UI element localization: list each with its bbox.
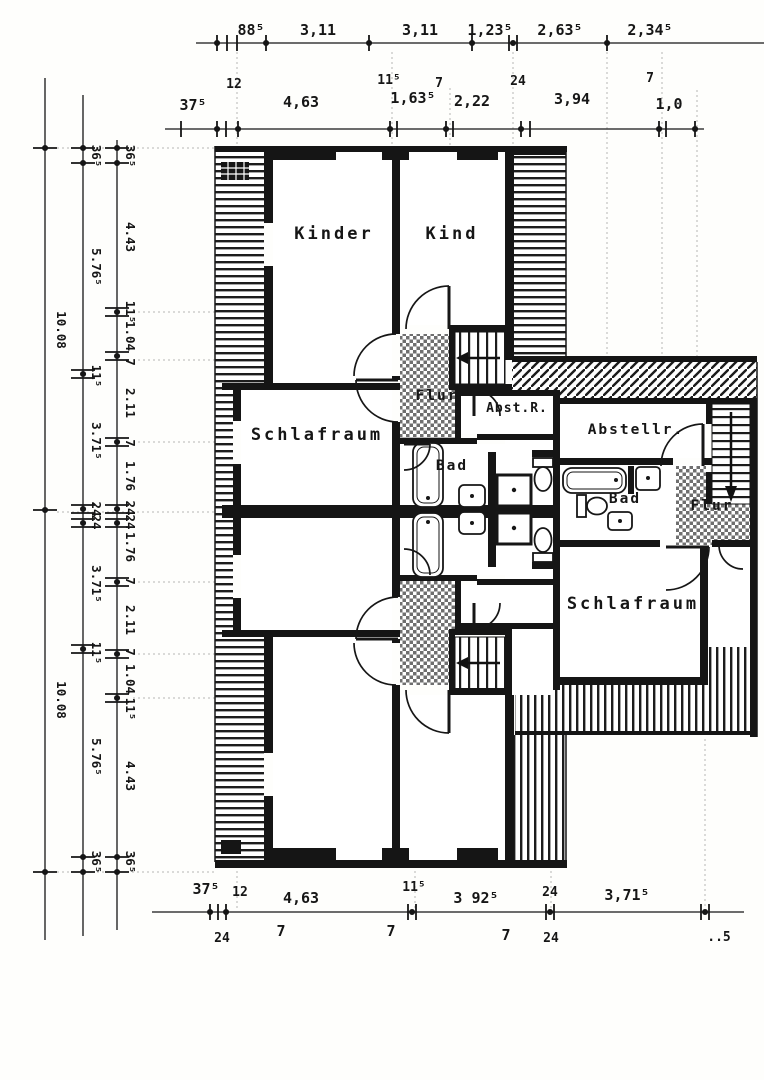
room-schlafraum-lower bbox=[241, 518, 392, 630]
dim-label: 24 bbox=[542, 885, 558, 900]
dim-label: 7 bbox=[123, 358, 138, 366]
dimension-row-top-1: 88⁵ 3,11 3,11 1,23⁵ 2,63⁵ 2,34⁵ bbox=[196, 21, 764, 51]
dim-label: 24 bbox=[89, 514, 104, 529]
window-block bbox=[512, 146, 566, 155]
dim-label: 1.04 bbox=[123, 664, 138, 694]
room-label-bad-right: Bad bbox=[609, 491, 641, 507]
dim-label: 11⁵ bbox=[89, 642, 104, 665]
vent-block bbox=[221, 840, 241, 854]
room-label-abstr: Abst.R. bbox=[486, 401, 548, 416]
room-schlafraum-upper bbox=[241, 390, 392, 505]
dim-label: 1,23⁵ bbox=[467, 21, 512, 39]
dim-label: 37⁵ bbox=[179, 96, 206, 114]
room-label-kind: Kind bbox=[426, 224, 479, 244]
dim-label: 3.71⁵ bbox=[89, 422, 104, 460]
dim-label: 7 bbox=[646, 71, 654, 86]
dim-label: 4,63 bbox=[283, 93, 319, 111]
dimension-row-bottom: 37⁵ 12 4,63 11⁵ 3 92⁵ 24 3,71⁵ 24 7 7 7 … bbox=[152, 880, 744, 946]
dim-label: 2,34⁵ bbox=[627, 21, 672, 39]
dim-label: 2,63⁵ bbox=[537, 21, 582, 39]
room-lower-right bbox=[400, 695, 505, 860]
dim-label: 12 bbox=[232, 885, 248, 900]
window-block bbox=[382, 848, 409, 860]
dim-label: 36⁵ bbox=[89, 851, 104, 874]
dim-label: 10.08 bbox=[54, 311, 69, 349]
dim-label: 7 bbox=[435, 76, 443, 91]
dim-label: 5.76⁵ bbox=[89, 738, 104, 776]
dim-label: 24 bbox=[543, 931, 559, 946]
dim-label: ..5 bbox=[707, 930, 730, 945]
dim-label: 7 bbox=[276, 922, 285, 940]
dim-label: 7 bbox=[123, 648, 138, 656]
floor-plan-drawing: 88⁵ 3,11 3,11 1,23⁵ 2,63⁵ 2,34⁵ 37⁵ 4,63… bbox=[0, 0, 764, 1080]
window-block bbox=[382, 146, 409, 160]
dim-label: 11⁵ bbox=[123, 698, 138, 721]
dim-label: 11⁵ bbox=[123, 301, 138, 324]
dim-label: 1.04 bbox=[123, 321, 138, 351]
dim-label: 3.71⁵ bbox=[89, 565, 104, 603]
dim-label: 5.76⁵ bbox=[89, 248, 104, 286]
dimension-row-top-2: 37⁵ 4,63 1,63⁵ 2,22 3,94 1,0 12 11⁵ 7 24… bbox=[165, 71, 704, 137]
scanned-floor-plan-page: 88⁵ 3,11 3,11 1,23⁵ 2,63⁵ 2,34⁵ 37⁵ 4,63… bbox=[0, 0, 764, 1080]
dim-label: 1.76 bbox=[123, 461, 138, 491]
room-label-schlafraum-right: Schlafraum bbox=[567, 594, 699, 614]
dim-label: 10.08 bbox=[54, 681, 69, 719]
dim-label: 36⁵ bbox=[89, 145, 104, 168]
toilet-tank-upper bbox=[533, 458, 553, 467]
window-block bbox=[272, 848, 336, 860]
room-kinder bbox=[273, 152, 392, 383]
toilet-upper bbox=[535, 467, 552, 491]
dim-label: 3,11 bbox=[300, 21, 336, 39]
toilet-tank-right bbox=[577, 495, 586, 517]
dim-label: 11⁵ bbox=[377, 73, 400, 88]
dim-label: 24 bbox=[123, 514, 138, 529]
toilet-tank-lower bbox=[533, 553, 553, 562]
window-block bbox=[457, 848, 498, 860]
dim-label: 1,0 bbox=[655, 95, 682, 113]
dim-label: 3 92⁵ bbox=[453, 889, 498, 907]
dim-label: 3,94 bbox=[554, 90, 590, 108]
dim-label: 2.11 bbox=[123, 388, 138, 418]
room-label-kinder: Kinder bbox=[294, 224, 373, 244]
dim-label: 7 bbox=[501, 926, 510, 944]
dim-label: 24 bbox=[214, 931, 230, 946]
dim-label: 1,63⁵ bbox=[390, 89, 435, 107]
dim-label: 7 bbox=[123, 577, 138, 585]
dim-label: 11⁵ bbox=[89, 365, 104, 388]
toilet-right bbox=[587, 498, 607, 515]
dim-label: 12 bbox=[226, 77, 242, 92]
dim-label: 7 bbox=[123, 439, 138, 447]
dim-label: 7 bbox=[386, 922, 395, 940]
dim-label: 11⁵ bbox=[402, 880, 425, 895]
dim-label: 2.11 bbox=[123, 605, 138, 635]
dim-label: 3,71⁵ bbox=[604, 886, 649, 904]
dim-label: 24 bbox=[123, 500, 138, 515]
dim-label: 3,11 bbox=[402, 21, 438, 39]
vent-grid-block bbox=[221, 162, 249, 180]
dim-label: 2,22 bbox=[454, 92, 490, 110]
room-label-schlafraum-upper: Schlafraum bbox=[251, 425, 383, 445]
dim-label: 36⁵ bbox=[123, 145, 138, 168]
dim-label: 37⁵ bbox=[192, 880, 219, 898]
dim-label: 4.43 bbox=[123, 761, 138, 791]
room-right-strip bbox=[708, 547, 750, 647]
toilet-lower bbox=[535, 528, 552, 552]
dim-label: 36⁵ bbox=[123, 851, 138, 874]
dimension-column-left: 10.08 10.08 36⁵ 5.76⁵ 11⁵ 3.71⁵ 24 24 3.… bbox=[33, 78, 138, 940]
dim-label: 1.76 bbox=[123, 532, 138, 562]
room-lower-left bbox=[273, 637, 392, 860]
room-label-bad-upper: Bad bbox=[436, 458, 468, 474]
window-block bbox=[457, 146, 498, 160]
dim-label: 88⁵ bbox=[237, 21, 264, 39]
room-label-flur-right: Flur bbox=[691, 498, 734, 514]
room-label-flur-upper: Flur bbox=[416, 388, 459, 404]
dim-label: 24 bbox=[510, 74, 526, 89]
dim-label: 4,63 bbox=[283, 889, 319, 907]
window-block bbox=[272, 146, 336, 160]
room-label-abstellr: Abstellr. bbox=[588, 422, 685, 438]
dim-label: 4.43 bbox=[123, 222, 138, 252]
